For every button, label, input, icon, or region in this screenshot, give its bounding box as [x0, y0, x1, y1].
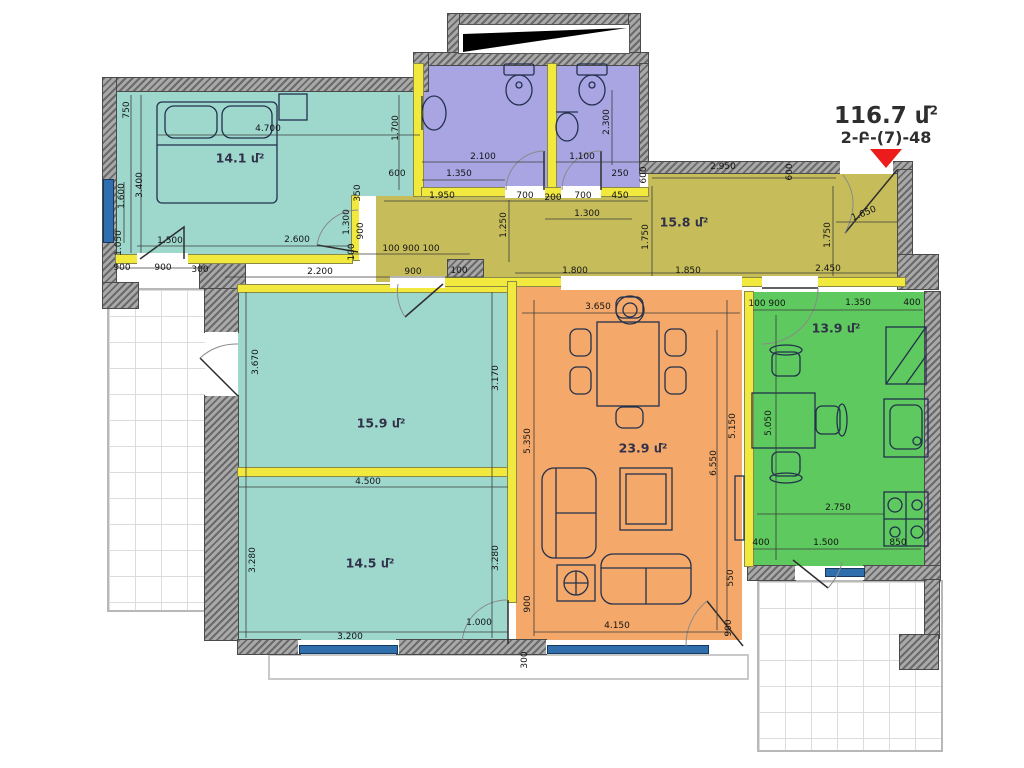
room-area-label: 15.8 մ²: [660, 215, 709, 230]
dimension-label: 1.750: [823, 222, 833, 248]
dimension-label: 2.450: [815, 264, 841, 274]
dimension-label: 2.950: [710, 162, 736, 172]
dimension-label: 300: [520, 651, 530, 668]
dimension-label: 100: [347, 243, 357, 260]
dimension-label: 1.350: [845, 298, 871, 308]
dimension-label: 2.750: [825, 503, 851, 513]
dimension-label: 400: [903, 298, 920, 308]
dimension-label: 900: [113, 263, 130, 273]
total-area-label: 116.7 մ2: [820, 104, 952, 128]
room-area-label: 15.9 մ²: [357, 416, 406, 431]
dimension-label: 900: [523, 595, 533, 612]
room-area-label: 14.5 մ²: [346, 556, 395, 571]
dimension-label: 1.000: [466, 618, 492, 628]
dimension-label: 3.400: [135, 172, 145, 198]
dimension-label: 900: [356, 222, 366, 239]
dimension-label: 5.350: [523, 428, 533, 454]
dimension-label: 3.650: [585, 302, 611, 312]
dimension-label: 1.950: [429, 191, 455, 201]
dimension-label: 900: [724, 619, 734, 636]
dimension-label: 250: [611, 169, 628, 179]
dimension-label: 2.300: [602, 109, 612, 135]
dimension-label: 1.100: [569, 152, 595, 162]
dimension-label: 3.280: [248, 547, 258, 573]
dimension-label: 100: [748, 299, 765, 309]
dimension-label: 600: [639, 166, 649, 183]
title-block: 116.7 մ2 2-Բ-(7)-48: [820, 104, 952, 168]
dimension-label: 200: [544, 193, 561, 203]
dimension-label: 1.750: [641, 224, 651, 250]
dimension-label: 100 900 100: [382, 244, 439, 254]
dimension-label: 900: [154, 263, 171, 273]
dimension-label: 900: [404, 267, 421, 277]
dimension-label: 6.550: [709, 450, 719, 476]
dimension-label: 600: [785, 163, 795, 180]
dimension-label: 1.700: [391, 115, 401, 141]
dimension-label: 1.050: [114, 230, 124, 256]
dimension-label: 1.850: [675, 266, 701, 276]
dimension-label: 700: [516, 191, 533, 201]
dimension-label: 3.280: [491, 545, 501, 571]
dimension-label: 4.500: [355, 477, 381, 487]
dimension-label: 600: [388, 169, 405, 179]
dimension-label: 1.800: [562, 266, 588, 276]
entrance-arrow-icon: [870, 149, 902, 168]
dimension-label: 4.700: [255, 124, 281, 134]
room-area-label: 14.1 մ²: [216, 151, 265, 166]
dimension-label: 900: [768, 299, 785, 309]
apartment-code: 2-Բ-(7)-48: [820, 128, 952, 147]
dimension-label: 1.500: [157, 236, 183, 246]
dimension-label: 550: [726, 569, 736, 586]
dimension-label: 100: [450, 266, 467, 276]
dimension-label: 1.300: [574, 209, 600, 219]
dimension-label: 450: [611, 191, 628, 201]
dimension-label: 3.200: [337, 632, 363, 642]
dimension-label: 2.100: [470, 152, 496, 162]
dimension-label: 1.600: [117, 183, 127, 209]
dimension-label: 3.670: [251, 349, 261, 375]
dimension-label: 5.150: [728, 413, 738, 439]
dimension-label: 750: [122, 101, 132, 118]
dimension-label: 700: [574, 191, 591, 201]
dimension-label: 3.170: [491, 365, 501, 391]
dimension-label: 4.150: [604, 621, 630, 631]
dimension-label: 1.500: [813, 538, 839, 548]
dimension-label: 300: [191, 265, 208, 275]
dimension-label: 2.200: [307, 267, 333, 277]
dimension-label: 350: [353, 184, 363, 201]
room-area-label: 23.9 մ²: [619, 441, 668, 456]
dimension-label: 1.250: [499, 212, 509, 238]
dimension-label: 5.050: [764, 410, 774, 436]
dimension-label: 1.650: [850, 205, 878, 224]
dimension-label: 1.350: [446, 169, 472, 179]
floor-plan: 7504.7001.6003.4001.7006003501.300900100…: [0, 0, 1024, 768]
room-area-label: 13.9 մ²: [812, 321, 861, 336]
dimension-label: 1.300: [342, 209, 352, 235]
dimension-label: 400: [752, 538, 769, 548]
dimension-label: 850: [889, 538, 906, 548]
dimension-label: 2.600: [284, 235, 310, 245]
